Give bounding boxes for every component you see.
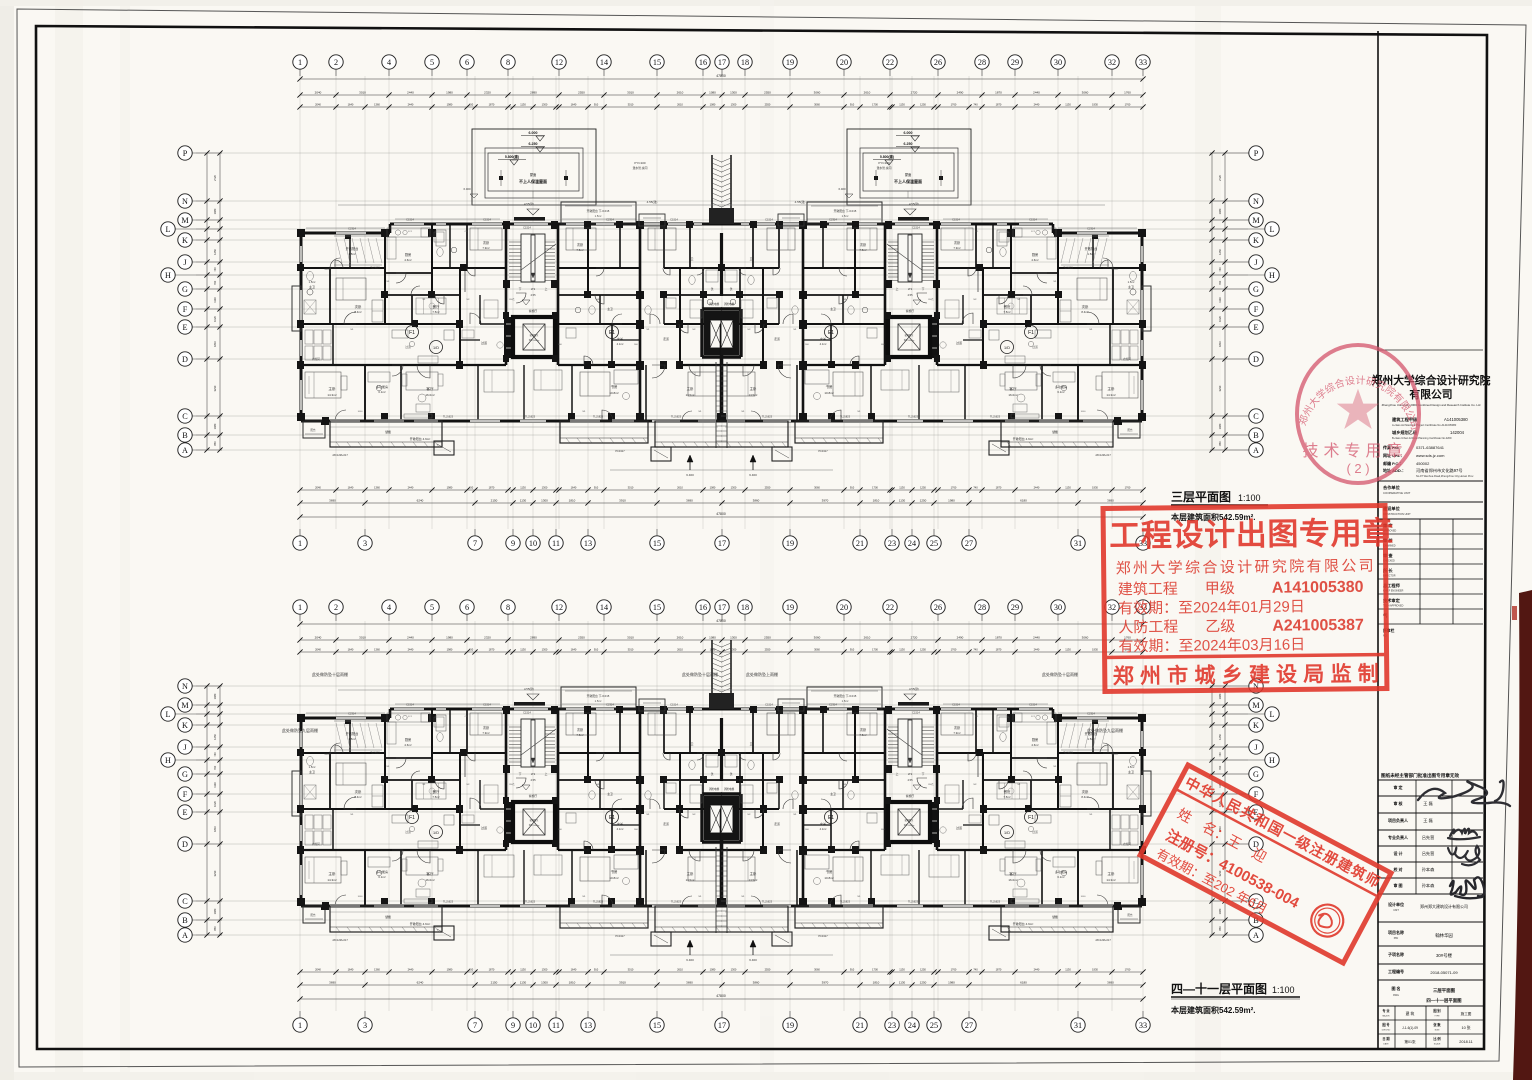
svg-text:3230: 3230 bbox=[213, 385, 217, 391]
svg-text:1810: 1810 bbox=[1218, 341, 1222, 347]
svg-text:泄水管,余同: 泄水管,余同 bbox=[877, 166, 892, 170]
svg-text:此处做防坠十层雨棚: 此处做防坠十层雨棚 bbox=[312, 671, 348, 677]
svg-text:过道: 过道 bbox=[481, 825, 487, 830]
svg-text:3060: 3060 bbox=[814, 486, 820, 490]
svg-text:910: 910 bbox=[850, 648, 855, 652]
svg-text:15: 15 bbox=[653, 58, 661, 67]
svg-text:乙级: 乙级 bbox=[1205, 618, 1235, 635]
svg-text:消防电梯: 消防电梯 bbox=[724, 787, 735, 791]
svg-text:TLJ1623: TLJ1623 bbox=[1063, 752, 1073, 755]
svg-text:本层建筑面积542.59m².: 本层建筑面积542.59m². bbox=[1170, 1005, 1255, 1015]
svg-text:5.800(建): 5.800(建) bbox=[880, 154, 894, 159]
svg-text:6.1m²: 6.1m² bbox=[1057, 875, 1064, 879]
svg-text:PC3417: PC3417 bbox=[818, 934, 828, 938]
svg-text:2550: 2550 bbox=[578, 636, 585, 640]
svg-text:F1: F1 bbox=[409, 330, 415, 336]
svg-text:过道: 过道 bbox=[956, 340, 962, 345]
svg-text:47800: 47800 bbox=[716, 994, 726, 998]
svg-text:1130: 1130 bbox=[899, 103, 905, 107]
svg-text:C1514: C1514 bbox=[523, 711, 531, 715]
svg-text:2550: 2550 bbox=[765, 648, 771, 652]
svg-text:12: 12 bbox=[555, 603, 563, 612]
svg-text:1130: 1130 bbox=[899, 486, 905, 490]
svg-text:740: 740 bbox=[973, 968, 978, 972]
svg-text:1870: 1870 bbox=[995, 636, 1002, 640]
svg-text:790: 790 bbox=[1218, 765, 1222, 770]
svg-text:次卧: 次卧 bbox=[483, 240, 490, 245]
svg-text:TLJ1623: TLJ1623 bbox=[908, 415, 919, 419]
svg-text:G: G bbox=[1253, 285, 1259, 294]
svg-text:C2314: C2314 bbox=[1087, 712, 1095, 716]
svg-text:2018.11: 2018.11 bbox=[1459, 1040, 1472, 1044]
svg-text:主卧: 主卧 bbox=[750, 386, 757, 391]
svg-text:1080: 1080 bbox=[710, 103, 716, 107]
svg-text:TLJ1623: TLJ1623 bbox=[525, 415, 536, 419]
svg-text:厨房: 厨房 bbox=[1032, 252, 1038, 257]
svg-text:29: 29 bbox=[1011, 58, 1019, 67]
svg-text:1130: 1130 bbox=[1065, 648, 1071, 652]
svg-text:开敞阳台 下-6.015: 开敞阳台 下-6.015 bbox=[834, 209, 857, 213]
svg-text:19: 19 bbox=[786, 539, 794, 548]
svg-text:1640: 1640 bbox=[571, 103, 577, 107]
svg-text:1000: 1000 bbox=[1081, 411, 1087, 413]
svg-text:4.55: 4.55 bbox=[530, 293, 536, 297]
svg-text:3060: 3060 bbox=[814, 91, 821, 95]
svg-text:13.5m²: 13.5m² bbox=[686, 393, 695, 397]
svg-text:1130: 1130 bbox=[213, 297, 217, 303]
svg-text:2610: 2610 bbox=[677, 103, 683, 107]
svg-text:次卧: 次卧 bbox=[860, 727, 867, 732]
svg-text:PC3417: PC3417 bbox=[818, 449, 828, 453]
svg-text:26: 26 bbox=[934, 603, 942, 612]
svg-text:1080: 1080 bbox=[1218, 208, 1222, 214]
svg-text:三层平面图: 三层平面图 bbox=[1433, 987, 1456, 994]
svg-text:C1514: C1514 bbox=[670, 218, 678, 222]
svg-text:下: 下 bbox=[519, 772, 522, 776]
svg-text:K: K bbox=[182, 236, 188, 245]
svg-text:开敞阳台 4.6m²: 开敞阳台 4.6m² bbox=[1013, 436, 1034, 441]
svg-text:3230: 3230 bbox=[1218, 385, 1222, 391]
svg-text:3910: 3910 bbox=[619, 981, 626, 985]
svg-text:G: G bbox=[1253, 770, 1259, 779]
svg-text:1760: 1760 bbox=[951, 968, 957, 972]
svg-text:1700: 1700 bbox=[872, 968, 878, 972]
svg-text:1130: 1130 bbox=[520, 648, 526, 652]
svg-text:主卧: 主卧 bbox=[328, 386, 336, 391]
svg-text:B: B bbox=[1253, 431, 1259, 440]
svg-text:1.5m²: 1.5m² bbox=[842, 699, 849, 703]
svg-text:1080: 1080 bbox=[213, 908, 217, 914]
svg-text:4.6m²: 4.6m² bbox=[1031, 258, 1038, 262]
svg-text:B-class Urban & Rural Planning: B-class Urban & Rural Planning Certifica… bbox=[1392, 436, 1452, 440]
svg-text:阳台: 阳台 bbox=[310, 913, 316, 917]
svg-text:4.1m²: 4.1m² bbox=[820, 342, 827, 346]
svg-text:2550: 2550 bbox=[765, 968, 771, 972]
svg-text:A: A bbox=[1253, 931, 1259, 940]
svg-text:6.460: 6.460 bbox=[464, 187, 471, 191]
svg-text:7.5m²: 7.5m² bbox=[432, 310, 439, 314]
svg-text:次卧: 次卧 bbox=[483, 725, 490, 730]
svg-text:C1514: C1514 bbox=[1029, 218, 1037, 222]
svg-text:F: F bbox=[183, 305, 188, 314]
svg-text:1/D: 1/D bbox=[1004, 831, 1010, 835]
svg-text:消防电梯: 消防电梯 bbox=[724, 302, 735, 306]
svg-text:H: H bbox=[1269, 271, 1275, 280]
svg-text:27: 27 bbox=[965, 539, 973, 548]
svg-text:1810: 1810 bbox=[569, 499, 576, 503]
svg-text:TLJ1623: TLJ1623 bbox=[990, 415, 1001, 419]
svg-text:B: B bbox=[182, 431, 188, 440]
svg-text:3010: 3010 bbox=[627, 636, 634, 640]
svg-text:开敞阳台 下-6.015: 开敞阳台 下-6.015 bbox=[834, 694, 857, 698]
svg-text:910: 910 bbox=[850, 486, 855, 490]
svg-text:21: 21 bbox=[856, 1021, 864, 1030]
svg-text:次卧: 次卧 bbox=[577, 727, 584, 732]
svg-text:1360: 1360 bbox=[374, 648, 380, 652]
svg-text:1640: 1640 bbox=[348, 648, 354, 652]
svg-text:9: 9 bbox=[511, 539, 515, 548]
svg-text:2040: 2040 bbox=[315, 636, 322, 640]
svg-text:32: 32 bbox=[1108, 58, 1116, 67]
svg-text:衣帽间: 衣帽间 bbox=[312, 842, 320, 846]
svg-text:6.460: 6.460 bbox=[749, 958, 757, 962]
svg-text:17: 17 bbox=[718, 1021, 726, 1030]
svg-text:次卧: 次卧 bbox=[954, 725, 961, 730]
svg-text:2720: 2720 bbox=[1218, 175, 1222, 181]
svg-text:D: D bbox=[182, 840, 188, 849]
svg-text:450: 450 bbox=[469, 103, 474, 107]
svg-text:MAJOR: MAJOR bbox=[1383, 1015, 1391, 1018]
svg-text:33: 33 bbox=[1139, 58, 1147, 67]
svg-text:740: 740 bbox=[973, 648, 978, 652]
svg-text:G: G bbox=[182, 770, 188, 779]
svg-text:1130: 1130 bbox=[899, 648, 905, 652]
svg-text:6.460: 6.460 bbox=[686, 473, 694, 477]
svg-text:10 张: 10 张 bbox=[1461, 1025, 1470, 1030]
svg-text:3690: 3690 bbox=[329, 499, 336, 503]
svg-text:L: L bbox=[1269, 225, 1274, 234]
svg-text:TLJ1823: TLJ1823 bbox=[593, 900, 604, 904]
svg-text:31: 31 bbox=[1074, 1021, 1082, 1030]
svg-text:1760: 1760 bbox=[951, 103, 957, 107]
svg-text:N: N bbox=[182, 682, 188, 691]
svg-text:1.5m²: 1.5m² bbox=[348, 252, 355, 256]
svg-text:2440: 2440 bbox=[408, 103, 414, 107]
svg-text:PRJ: PRJ bbox=[1394, 937, 1399, 940]
svg-text:7.5m²: 7.5m² bbox=[576, 733, 583, 737]
svg-text:47800: 47800 bbox=[716, 619, 726, 623]
svg-text:SCALE: SCALE bbox=[1434, 1043, 1441, 1046]
svg-text:6.1m²: 6.1m² bbox=[378, 390, 385, 394]
svg-text:19: 19 bbox=[786, 603, 794, 612]
svg-text:4: 4 bbox=[387, 603, 391, 612]
svg-text:23: 23 bbox=[888, 539, 896, 548]
svg-text:14: 14 bbox=[600, 603, 608, 612]
svg-text:1300: 1300 bbox=[730, 91, 737, 95]
svg-text:1/D: 1/D bbox=[433, 831, 439, 835]
svg-text:19: 19 bbox=[786, 58, 794, 67]
svg-text:4.6m²: 4.6m² bbox=[404, 258, 411, 262]
svg-text:TLJ1623: TLJ1623 bbox=[762, 900, 773, 904]
svg-text:F: F bbox=[1254, 305, 1259, 314]
svg-text:候梯厅: 候梯厅 bbox=[906, 309, 915, 313]
svg-text:A: A bbox=[182, 446, 188, 455]
svg-text:四—十一层平面图: 四—十一层平面图 bbox=[1426, 997, 1462, 1004]
svg-text:1.5m²: 1.5m² bbox=[595, 699, 602, 703]
svg-text:4.6m²: 4.6m² bbox=[1031, 743, 1038, 747]
svg-text:G: G bbox=[182, 285, 188, 294]
svg-text:6180: 6180 bbox=[1020, 981, 1027, 985]
svg-text:C: C bbox=[182, 897, 188, 906]
svg-text:1.5m²: 1.5m² bbox=[1087, 252, 1094, 256]
svg-text:孙本森: 孙本森 bbox=[1422, 882, 1435, 889]
svg-text:4: 4 bbox=[387, 58, 391, 67]
svg-text:C1514: C1514 bbox=[1029, 703, 1037, 707]
svg-text:储藏: 储藏 bbox=[385, 430, 391, 434]
svg-text:开敞阳台: 开敞阳台 bbox=[346, 246, 359, 251]
svg-text:8: 8 bbox=[506, 603, 510, 612]
svg-text:多功能房: 多功能房 bbox=[376, 869, 388, 874]
svg-text:上: 上 bbox=[545, 772, 548, 776]
svg-text:阳台: 阳台 bbox=[1127, 913, 1133, 917]
svg-text:3860: 3860 bbox=[753, 499, 760, 503]
svg-text:2040: 2040 bbox=[315, 486, 321, 490]
svg-text:6240: 6240 bbox=[417, 981, 424, 985]
svg-text:850: 850 bbox=[213, 926, 217, 931]
svg-text:1810: 1810 bbox=[213, 341, 217, 347]
svg-text:餐厅: 餐厅 bbox=[1004, 789, 1011, 794]
svg-text:3010: 3010 bbox=[359, 91, 366, 95]
svg-text:卫: 卫 bbox=[691, 742, 694, 746]
svg-text:E1: E1 bbox=[828, 815, 834, 821]
svg-text:C1514: C1514 bbox=[670, 703, 678, 707]
svg-text:19: 19 bbox=[786, 1021, 794, 1030]
svg-text:5: 5 bbox=[430, 603, 434, 612]
svg-text:3860: 3860 bbox=[753, 981, 760, 985]
svg-text:2550: 2550 bbox=[765, 486, 771, 490]
svg-text:专业负责人: 专业负责人 bbox=[1388, 834, 1409, 840]
svg-text:人防工程: 人防工程 bbox=[1118, 619, 1178, 637]
svg-text:1250: 1250 bbox=[1218, 734, 1222, 740]
svg-text:餐厅: 餐厅 bbox=[433, 789, 440, 794]
svg-text:7.5m²: 7.5m² bbox=[859, 248, 866, 252]
svg-text:1080: 1080 bbox=[213, 693, 217, 699]
svg-text:JZC12M+017: JZC12M+017 bbox=[1095, 938, 1111, 942]
svg-text:E1: E1 bbox=[609, 815, 615, 821]
svg-text:47800: 47800 bbox=[716, 512, 726, 516]
svg-text:47800: 47800 bbox=[716, 74, 726, 78]
svg-text:7.5m²: 7.5m² bbox=[859, 733, 866, 737]
svg-text:TLJ1623: TLJ1623 bbox=[370, 267, 380, 270]
svg-text:15: 15 bbox=[653, 603, 661, 612]
svg-text:1760: 1760 bbox=[1124, 91, 1131, 95]
svg-text:2720: 2720 bbox=[911, 91, 918, 95]
svg-text:洗: 洗 bbox=[711, 772, 714, 776]
svg-text:图 别: 图 别 bbox=[1433, 1008, 1440, 1013]
svg-text:10: 10 bbox=[529, 539, 537, 548]
svg-text:1300: 1300 bbox=[542, 648, 548, 652]
svg-text:33: 33 bbox=[1139, 1021, 1147, 1030]
svg-text:M0921: M0921 bbox=[1112, 269, 1119, 271]
svg-text:建 筑: 建 筑 bbox=[1406, 1011, 1415, 1016]
svg-text:次卧: 次卧 bbox=[1082, 789, 1089, 794]
svg-text:三层平面图: 三层平面图 bbox=[1171, 490, 1231, 504]
svg-text:C1514: C1514 bbox=[952, 703, 960, 707]
svg-text:TLJ1623: TLJ1623 bbox=[370, 752, 380, 755]
svg-text:A: A bbox=[1253, 446, 1259, 455]
svg-text:450002: 450002 bbox=[1416, 461, 1430, 466]
svg-text:客厅: 客厅 bbox=[1009, 386, 1017, 391]
svg-text:11: 11 bbox=[552, 539, 560, 548]
svg-text:1130: 1130 bbox=[899, 981, 906, 985]
svg-text:2440: 2440 bbox=[407, 91, 414, 95]
svg-text:3690: 3690 bbox=[686, 499, 693, 503]
svg-text:TLJ1623: TLJ1623 bbox=[762, 415, 773, 419]
svg-text:C1514: C1514 bbox=[765, 703, 773, 707]
svg-text:C: C bbox=[1253, 412, 1259, 421]
svg-text:4.55(建): 4.55(建) bbox=[524, 687, 534, 691]
svg-text:16.0m²: 16.0m² bbox=[425, 393, 434, 397]
svg-text:450: 450 bbox=[469, 648, 474, 652]
svg-text:此处做防坠九层雨棚: 此处做防坠九层雨棚 bbox=[282, 727, 318, 733]
svg-text:1.5m²: 1.5m² bbox=[309, 765, 316, 769]
svg-text:TLJ1623: TLJ1623 bbox=[525, 900, 536, 904]
svg-text:1:100: 1:100 bbox=[1272, 985, 1295, 995]
svg-text:1300: 1300 bbox=[541, 981, 548, 985]
svg-text:2040: 2040 bbox=[315, 91, 322, 95]
svg-text:No.97 Wenhua Road,Zhengzhou Ci: No.97 Wenhua Road,Zhengzhou City,Henan P… bbox=[1416, 474, 1474, 478]
svg-text:开敞阳台 4.6m²: 开敞阳台 4.6m² bbox=[410, 436, 431, 441]
svg-text:1870: 1870 bbox=[996, 648, 1002, 652]
svg-text:2550: 2550 bbox=[764, 636, 771, 640]
svg-text:C2314: C2314 bbox=[606, 703, 614, 707]
svg-text:1: 1 bbox=[298, 603, 302, 612]
svg-text:16.0m²: 16.0m² bbox=[1008, 878, 1017, 882]
svg-text:M: M bbox=[181, 216, 189, 225]
svg-text:甲级: 甲级 bbox=[1205, 580, 1235, 597]
svg-text:消防电梯: 消防电梯 bbox=[709, 787, 720, 791]
svg-text:厨房: 厨房 bbox=[405, 737, 411, 742]
svg-text:C1514: C1514 bbox=[765, 218, 773, 222]
svg-text:1810: 1810 bbox=[873, 499, 880, 503]
svg-text:450: 450 bbox=[469, 486, 474, 490]
svg-text:A: A bbox=[182, 931, 188, 940]
svg-text:F1: F1 bbox=[409, 815, 415, 821]
svg-text:24: 24 bbox=[908, 1021, 916, 1030]
svg-text:1080: 1080 bbox=[213, 208, 217, 214]
svg-text:2550: 2550 bbox=[764, 91, 771, 95]
svg-text:C1514: C1514 bbox=[406, 703, 414, 707]
svg-text:消防电梯: 消防电梯 bbox=[709, 302, 720, 306]
svg-text:TLJ1623: TLJ1623 bbox=[443, 900, 454, 904]
svg-text:开敞阳台 下-6.015: 开敞阳台 下-6.015 bbox=[587, 694, 610, 698]
svg-text:上: 上 bbox=[896, 772, 899, 776]
svg-text:河南省郑州市文化路97号: 河南省郑州市文化路97号 bbox=[1416, 467, 1463, 474]
svg-text:1130: 1130 bbox=[899, 968, 905, 972]
svg-text:主卧: 主卧 bbox=[687, 386, 694, 391]
svg-text:D: D bbox=[182, 355, 188, 364]
svg-text:28: 28 bbox=[978, 603, 986, 612]
svg-text:1130: 1130 bbox=[899, 499, 906, 503]
svg-text:1870: 1870 bbox=[996, 486, 1002, 490]
svg-text:设 计: 设 计 bbox=[1393, 850, 1402, 856]
svg-text:上: 上 bbox=[545, 287, 548, 291]
svg-text:10.8m²: 10.8m² bbox=[824, 876, 833, 880]
svg-text:4.1m²: 4.1m² bbox=[617, 342, 624, 346]
svg-text:C1514: C1514 bbox=[523, 226, 531, 230]
svg-text:图纸未经主管部门批准出图专用章无效: 图纸未经主管部门批准出图专用章无效 bbox=[1381, 772, 1460, 779]
svg-text:B: B bbox=[182, 916, 188, 925]
svg-text:2150: 2150 bbox=[491, 981, 498, 985]
svg-text:2550: 2550 bbox=[578, 91, 585, 95]
svg-text:C2314: C2314 bbox=[348, 712, 356, 716]
svg-text:1300: 1300 bbox=[542, 486, 548, 490]
svg-text:2: 2 bbox=[334, 58, 338, 67]
svg-text:P: P bbox=[183, 149, 188, 158]
svg-text:主卧: 主卧 bbox=[750, 871, 757, 876]
svg-text:JZC12M+017: JZC12M+017 bbox=[332, 453, 348, 457]
svg-text:12: 12 bbox=[555, 58, 563, 67]
svg-text:PYC100: PYC100 bbox=[878, 161, 890, 165]
svg-text:1250: 1250 bbox=[920, 499, 927, 503]
svg-text:1020: 1020 bbox=[213, 801, 217, 807]
svg-text:TLJ1823: TLJ1823 bbox=[840, 900, 851, 904]
svg-text:11: 11 bbox=[552, 1021, 560, 1030]
svg-text:2320: 2320 bbox=[484, 91, 491, 95]
svg-text:24: 24 bbox=[908, 539, 916, 548]
svg-text:2440: 2440 bbox=[1034, 103, 1040, 107]
svg-text:1080: 1080 bbox=[1218, 693, 1222, 699]
svg-text:TLJ1623: TLJ1623 bbox=[908, 900, 919, 904]
svg-text:790: 790 bbox=[1218, 280, 1222, 285]
svg-text:1080: 1080 bbox=[710, 486, 716, 490]
svg-text:上: 上 bbox=[896, 287, 899, 291]
svg-text:1000: 1000 bbox=[1081, 896, 1087, 898]
svg-text:1130: 1130 bbox=[520, 968, 526, 972]
svg-text:26: 26 bbox=[934, 58, 942, 67]
svg-text:1930: 1930 bbox=[1092, 968, 1098, 972]
svg-text:14.3m²: 14.3m² bbox=[1106, 878, 1115, 882]
svg-text:TLJ1623: TLJ1623 bbox=[671, 415, 682, 419]
svg-text:PC3417: PC3417 bbox=[615, 449, 625, 453]
svg-text:4.6m²: 4.6m² bbox=[404, 743, 411, 747]
svg-text:1980: 1980 bbox=[447, 968, 453, 972]
svg-text:2610: 2610 bbox=[677, 968, 683, 972]
svg-text:C2314: C2314 bbox=[1087, 227, 1095, 231]
svg-text:1130: 1130 bbox=[1218, 297, 1222, 303]
svg-text:2610: 2610 bbox=[677, 486, 683, 490]
svg-text:1250: 1250 bbox=[920, 968, 926, 972]
svg-text:走道: 走道 bbox=[774, 822, 780, 826]
svg-text:工程设计出图专用章: 工程设计出图专用章 bbox=[1109, 515, 1393, 553]
svg-text:C2314: C2314 bbox=[606, 218, 614, 222]
svg-text:13: 13 bbox=[584, 1021, 592, 1030]
svg-text:走道: 走道 bbox=[774, 337, 780, 341]
svg-text:4.55(建): 4.55(建) bbox=[524, 202, 534, 206]
svg-text:H: H bbox=[1269, 756, 1275, 765]
svg-text:1810: 1810 bbox=[873, 981, 880, 985]
svg-text:14.3m²: 14.3m² bbox=[327, 393, 336, 397]
svg-text:开敞阳台 下-6.015: 开敞阳台 下-6.015 bbox=[587, 209, 610, 213]
svg-text:3010: 3010 bbox=[359, 636, 366, 640]
svg-text:3060: 3060 bbox=[1082, 91, 1089, 95]
svg-text:2890: 2890 bbox=[530, 636, 537, 640]
svg-text:JZC12M+017: JZC12M+017 bbox=[332, 938, 348, 942]
svg-text:过道: 过道 bbox=[405, 830, 411, 834]
svg-text:M: M bbox=[1252, 216, 1260, 225]
svg-text:25: 25 bbox=[930, 1021, 938, 1030]
svg-text:6.000: 6.000 bbox=[529, 131, 538, 135]
